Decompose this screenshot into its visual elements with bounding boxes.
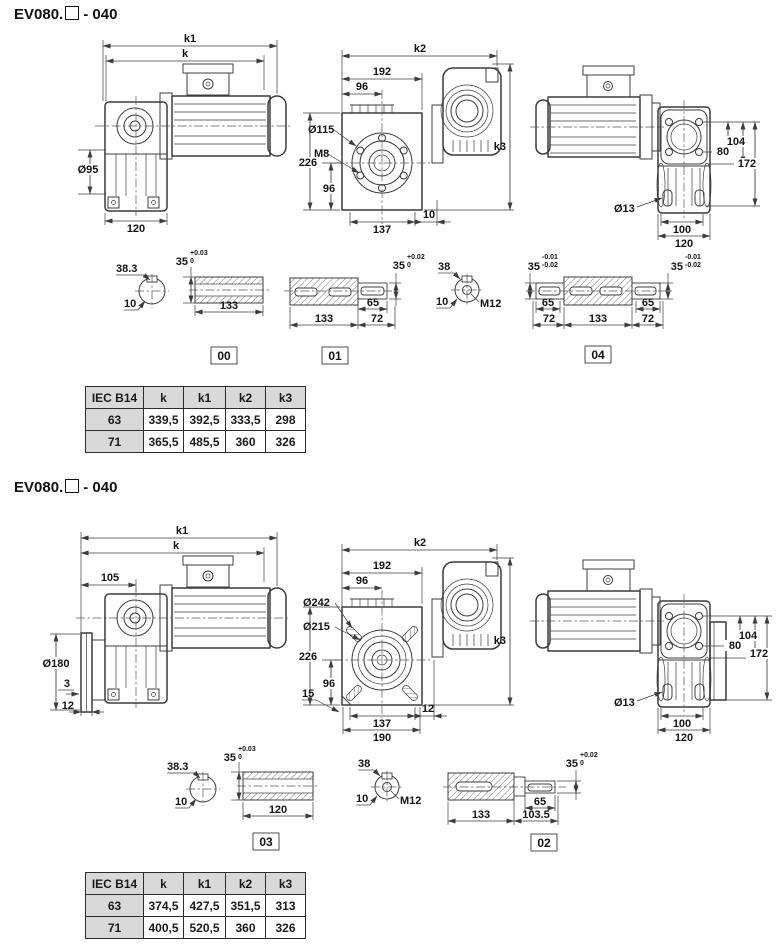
dim-k-bottom: k xyxy=(173,540,180,552)
dim-dia13-top: Ø13 xyxy=(614,203,635,215)
dim-38-3: 38.3 xyxy=(116,263,137,275)
terminal-box-cap xyxy=(583,66,634,75)
cell: 365,5 xyxy=(144,431,184,453)
shaft-tol-lower: 0 xyxy=(407,262,411,269)
len-133: 133 xyxy=(472,809,490,821)
key-65: 65 xyxy=(534,796,546,808)
cell: 333,5 xyxy=(226,409,266,431)
dim-dia215: Ø215 xyxy=(303,621,330,633)
dim-172-bottom: 172 xyxy=(750,648,768,660)
corner-lug xyxy=(345,684,363,702)
dim-k3-top: k3 xyxy=(494,141,506,153)
dim-120-top: 120 xyxy=(675,238,693,250)
dim-137-bottom: 137 xyxy=(373,718,391,730)
key-65-right: 65 xyxy=(642,297,654,309)
dim-96v-top: 96 xyxy=(323,183,335,195)
bottom-side-view: k1 k 105 Ø180 3 12 xyxy=(41,525,290,716)
dim-key-10: 10 xyxy=(356,793,368,805)
dim-100-top: 100 xyxy=(673,224,691,236)
len-120: 120 xyxy=(269,804,287,816)
dim-dia13-bottom: Ø13 xyxy=(614,697,635,709)
model-code-prefix: EV080. xyxy=(14,479,63,496)
cell: 392,5 xyxy=(184,409,226,431)
bottom-front-view: k2 192 96 Ø242 Ø215 226 96 15 xyxy=(297,537,514,744)
shaft-dia: 35 xyxy=(566,758,578,770)
dim-m12: M12 xyxy=(480,298,501,310)
shaft-detail-00: 35 +0.03 0 133 00 xyxy=(176,250,269,364)
dim-38-3: 38.3 xyxy=(167,761,188,773)
top-side-view: k1 k Ø95 120 xyxy=(74,33,290,235)
len-133: 133 xyxy=(220,300,238,312)
dim-key-10: 10 xyxy=(175,796,187,808)
dim-104-bottom: 104 xyxy=(739,630,758,642)
table-header-row: IEC B14 k k1 k2 k3 xyxy=(86,387,306,409)
shaft-step xyxy=(514,777,525,796)
dim-k-top: k xyxy=(182,48,189,60)
variant-tag-02: 02 xyxy=(537,836,551,850)
corner-lug xyxy=(401,625,419,643)
motor-end-view xyxy=(443,562,501,649)
drawing-canvas: k1 k Ø95 120 k2 192 96 xyxy=(0,0,783,950)
top-shaft-end-cross-section: 38 10 M12 xyxy=(436,261,501,310)
bottom-rear-view: 80 104 172 Ø13 100 120 xyxy=(530,560,772,744)
dim-m12: M12 xyxy=(400,795,421,807)
dim-dia95: Ø95 xyxy=(78,164,99,176)
dim-120-bottom: 120 xyxy=(675,732,693,744)
dim-key-10: 10 xyxy=(124,298,136,310)
dim-190: 190 xyxy=(373,732,391,744)
col-header-k3: k3 xyxy=(266,873,306,895)
cell: 313 xyxy=(266,895,306,917)
dim-dia115: Ø115 xyxy=(308,124,334,136)
col-header-k: k xyxy=(144,387,184,409)
shaft-tol-lower: 0 xyxy=(580,760,584,767)
page-title-bottom: EV080.- 040 xyxy=(14,479,117,496)
cell: 326 xyxy=(266,917,306,939)
page-title-top: EV080.- 040 xyxy=(14,6,117,23)
top-front-view: k2 192 96 Ø115 M8 226 96 137 xyxy=(297,43,514,236)
shaft-detail-02: 35 +0.02 0 65 133 103.5 02 xyxy=(443,752,598,851)
len-133: 133 xyxy=(315,313,333,325)
cell: 298 xyxy=(266,409,306,431)
col-header-k2: k2 xyxy=(226,873,266,895)
dim-k2-top: k2 xyxy=(414,43,426,55)
model-code-suffix: - 040 xyxy=(83,6,117,23)
dim-dia180: Ø180 xyxy=(43,658,70,670)
col-header-k3: k3 xyxy=(266,387,306,409)
mount-pad xyxy=(148,689,159,700)
terminal-box xyxy=(187,73,229,95)
motor-end-view xyxy=(443,68,501,155)
dim-12: 12 xyxy=(62,700,74,712)
dim-226-top: 226 xyxy=(299,157,317,169)
col-header-iec: IEC B14 xyxy=(86,387,144,409)
bore-tol-lower: 0 xyxy=(238,754,242,761)
variant-placeholder-box xyxy=(65,479,79,493)
dim-137-top: 137 xyxy=(373,224,391,236)
cell: 351,5 xyxy=(226,895,266,917)
bottom-shaft-end-cross-section: 38 10 M12 xyxy=(356,758,421,807)
tol-left-upper: -0.01 xyxy=(542,254,558,261)
variant-tag-01: 01 xyxy=(328,349,342,363)
dim-k1-top: k1 xyxy=(184,33,196,45)
cell: 520,5 xyxy=(184,917,226,939)
bore-dia: 35 xyxy=(176,256,188,268)
bottom-shaft-cross-section: 38.3 10 xyxy=(167,761,220,808)
mount-pad xyxy=(108,689,119,700)
terminal-box xyxy=(187,565,229,587)
dim-k2-bottom: k2 xyxy=(414,537,426,549)
dim-96v-bottom: 96 xyxy=(323,678,335,690)
dimension-table-bottom: IEC B14 k k1 k2 k3 63 374,5 427,5 351,5 … xyxy=(85,872,306,939)
cell: 360 xyxy=(226,431,266,453)
row-header: 71 xyxy=(86,917,144,939)
col-header-k2: k2 xyxy=(226,387,266,409)
output-flange-disk xyxy=(710,622,726,700)
top-rear-view: 80 104 172 Ø13 100 120 xyxy=(530,66,760,250)
bore-tol-lower: 0 xyxy=(190,258,194,265)
col-header-k1: k1 xyxy=(184,873,226,895)
dim-105: 105 xyxy=(101,572,119,584)
dim-192-top: 192 xyxy=(373,66,391,78)
tol-right-upper: -0.01 xyxy=(685,254,701,261)
mount-slot xyxy=(695,684,704,700)
cell: 339,5 xyxy=(144,409,184,431)
dim-3: 3 xyxy=(64,678,70,690)
cell: 360 xyxy=(226,917,266,939)
shaft-dia-left: 35 xyxy=(528,261,540,273)
shaft-dia: 35 xyxy=(393,260,405,272)
dim-96-bottom: 96 xyxy=(356,575,368,587)
bore-dia: 35 xyxy=(224,752,236,764)
shaft-tol-upper: +0.02 xyxy=(407,254,425,261)
bore-tol-upper: +0.03 xyxy=(190,250,208,257)
row-header: 63 xyxy=(86,409,144,431)
cell: 427,5 xyxy=(184,895,226,917)
variant-tag-04: 04 xyxy=(591,348,605,362)
shaft-detail-01: 35 +0.02 0 65 133 72 01 xyxy=(284,254,425,364)
tol-left-lower: -0.02 xyxy=(542,262,558,269)
dim-226-bottom: 226 xyxy=(299,651,317,663)
dim-96-top: 96 xyxy=(356,81,368,93)
table-row: 63 374,5 427,5 351,5 313 xyxy=(86,895,306,917)
mount-pad xyxy=(108,197,119,208)
dim-key-10: 10 xyxy=(436,296,448,308)
model-code-prefix: EV080. xyxy=(14,6,63,23)
shaft-dia-right: 35 xyxy=(671,261,683,273)
corner-lug xyxy=(401,684,419,702)
top-shaft-cross-section: 38.3 10 xyxy=(116,263,169,310)
dim-k1-bottom: k1 xyxy=(176,525,188,537)
row-header: 63 xyxy=(86,895,144,917)
shaft-detail-03: 35 +0.03 0 120 03 xyxy=(224,746,319,850)
cell: 374,5 xyxy=(144,895,184,917)
model-code-suffix: - 040 xyxy=(83,479,117,496)
dim-base-120: 120 xyxy=(127,223,145,235)
dimension-table-top: IEC B14 k k1 k2 k3 63 339,5 392,5 333,5 … xyxy=(85,386,306,453)
col-header-iec: IEC B14 xyxy=(86,873,144,895)
row-header: 71 xyxy=(86,431,144,453)
table-row: 71 400,5 520,5 360 326 xyxy=(86,917,306,939)
terminal-box-cap xyxy=(183,64,233,73)
ext-72: 72 xyxy=(371,313,383,325)
table-row: 63 339,5 392,5 333,5 298 xyxy=(86,409,306,431)
cell: 485,5 xyxy=(184,431,226,453)
terminal-box xyxy=(587,75,630,97)
dim-10-top: 10 xyxy=(423,209,435,221)
terminal-box xyxy=(587,569,630,591)
cell: 400,5 xyxy=(144,917,184,939)
dim-15: 15 xyxy=(302,688,314,700)
variant-tag-03: 03 xyxy=(259,835,273,849)
dim-100-bottom: 100 xyxy=(673,718,691,730)
col-header-k: k xyxy=(144,873,184,895)
len-133: 133 xyxy=(589,313,607,325)
ext-72-left: 72 xyxy=(543,313,555,325)
dim-38: 38 xyxy=(438,261,450,273)
cell: 326 xyxy=(266,431,306,453)
ext-72-right: 72 xyxy=(642,313,654,325)
terminal-box-cap xyxy=(583,560,634,569)
shaft-detail-04: 35 -0.01 -0.02 35 -0.01 -0.02 65 65 72 1… xyxy=(525,254,701,363)
key-65: 65 xyxy=(367,297,379,309)
variant-placeholder-box xyxy=(65,6,79,20)
col-header-k1: k1 xyxy=(184,387,226,409)
key-65-left: 65 xyxy=(542,297,554,309)
dim-104-top: 104 xyxy=(727,136,746,148)
mount-slot xyxy=(695,190,704,206)
table-header-row: IEC B14 k k1 k2 k3 xyxy=(86,873,306,895)
dim-38: 38 xyxy=(358,758,370,770)
dim-172-top: 172 xyxy=(738,158,756,170)
variant-tag-00: 00 xyxy=(217,349,231,363)
terminal-box-cap xyxy=(183,556,233,565)
table-row: 71 365,5 485,5 360 326 xyxy=(86,431,306,453)
ext-103-5: 103.5 xyxy=(522,809,550,821)
mount-pad xyxy=(148,197,159,208)
shaft-tol-upper: +0.02 xyxy=(580,752,598,759)
tol-right-lower: -0.02 xyxy=(685,262,701,269)
bore-tol-upper: +0.03 xyxy=(238,746,256,753)
dim-192-bottom: 192 xyxy=(373,560,391,572)
dim-k3-bottom: k3 xyxy=(494,635,506,647)
